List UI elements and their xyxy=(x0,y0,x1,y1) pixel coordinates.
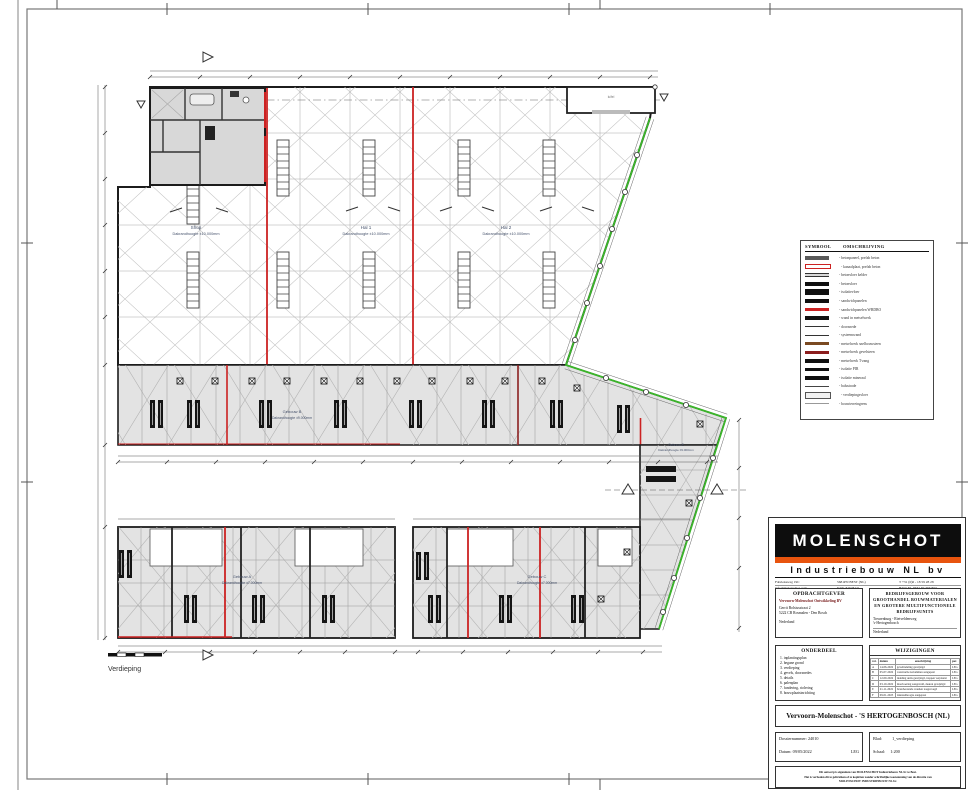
drawing-sheet: Shop Dakrandhoogte ±10.000mm Hal 1 Dakra… xyxy=(0,0,971,790)
opdrachtgever-country: Nederland xyxy=(779,620,859,625)
gebouw-b-label: Gebouw B xyxy=(283,409,302,414)
blad-value: 1_verdieping xyxy=(892,736,914,741)
gebouw-e-label: Gebouw E xyxy=(668,443,685,447)
legend-swatch xyxy=(805,386,829,387)
legend-row: - systeemwand xyxy=(805,331,929,340)
rev-desc: maatvoering aangevuld, deuren gewijzigd xyxy=(895,681,950,687)
legend-swatch xyxy=(805,351,829,354)
right-wing: Gebouw E Dakrandhoogte ±9.000mm xyxy=(640,421,717,629)
legend-label: - systeemwand xyxy=(839,333,861,337)
dossier-box: Dossiernummer: 24010 Datum: 09/05/2022 L… xyxy=(775,732,863,762)
legend-swatch xyxy=(805,392,831,399)
opdrachtgever-city: 5222 CB Rosmalen - Den Bosch xyxy=(779,611,859,616)
legend-swatch xyxy=(805,289,829,295)
legend-row: - betonvloer kelder xyxy=(805,271,929,280)
legend-row: - isolatie mineraal xyxy=(805,374,929,383)
legend-label: - sandwichpanelen xyxy=(839,299,867,303)
rev-ver: F xyxy=(871,692,879,698)
legend-row: - verdiepingsvloer xyxy=(805,391,929,400)
legend-row: - wand in metselwerk xyxy=(805,314,929,323)
legend-label: - verdiepingsvloer xyxy=(841,393,868,397)
legend-label: - isolatievloer xyxy=(839,290,859,294)
canopy xyxy=(567,85,657,114)
legend-label: - balustrade xyxy=(839,384,856,388)
legend-row: - betonpaneel, prefab beton xyxy=(805,254,929,263)
legend-swatch xyxy=(805,376,829,380)
legend-label: - metselwerk T-zang xyxy=(839,359,869,363)
hal1-height-label: Dakrandhoogte ±10.000mm xyxy=(342,232,389,236)
legend-label: - metselwerk snelbouwsteen xyxy=(839,342,881,346)
legend-swatch xyxy=(805,273,829,277)
project-country: Nederland xyxy=(873,628,957,635)
hal2-label: Hal 2 xyxy=(501,225,512,230)
floor-title: Verdieping xyxy=(108,666,141,673)
project-city: 's-Hertogenbosch xyxy=(873,621,957,626)
legend-swatch xyxy=(805,308,829,312)
legend-swatch xyxy=(805,403,829,405)
blad-box: Blad: 1_verdieping Schaal: 1:200 xyxy=(869,732,961,762)
gebouw-a-height-label: Dakrandhoogte ±7.000mm xyxy=(222,581,262,585)
middle-unit-strip: Gebouw B Dakrandhoogte ±9.000mm xyxy=(118,365,726,445)
legend-swatch xyxy=(805,282,829,286)
contact-phone: T +31 (0)6 - 18 59 28 28 xyxy=(899,580,961,584)
opdrachtgever-box: OPDRACHTGEVER Vervoorn-Molenschot Ontwik… xyxy=(775,588,863,638)
legend-row: - sandwichpanelen WBDBO xyxy=(805,305,929,314)
rev-date: 12-09-2022 xyxy=(878,675,895,681)
legend-label: - metselwerk gevelsteen xyxy=(839,350,875,354)
opdrachtgever-header: OPDRACHTGEVER xyxy=(776,589,862,597)
wijzigingen-table: ver. datum omschrijving par. A 14-06-202… xyxy=(870,658,960,698)
project-box: BEDRIJFSGEBOUW VOOR GROOTHANDEL BOUWMATE… xyxy=(869,588,961,638)
onderdeel-item: 8. bouwplaatsinrichting xyxy=(780,691,858,696)
hal2-height-label: Dakrandhoogte ±10.000mm xyxy=(482,232,529,236)
onderdeel-box: ONDERDEEL 1. inplantingsplan 2. begane g… xyxy=(775,645,863,701)
legend-description-header: OMSCHRIJVING xyxy=(843,244,885,249)
opdrachtgever-name: Vervoorn-Molenschot Ontwikkeling BV xyxy=(776,597,862,604)
legend-swatch xyxy=(805,359,829,363)
dossier-initials: LEG xyxy=(851,749,859,754)
legend-swatch xyxy=(805,299,829,303)
legend-row: - metselwerk snelbouwsteen xyxy=(805,339,929,348)
project-title-bar: Vervoorn-Molenschot - 'S HERTOGENBOSCH (… xyxy=(775,705,961,727)
legend-row: - kanaalplaat, prefab beton xyxy=(805,263,929,272)
bottom-left-block: Gebouw A Dakrandhoogte ±7.000mm xyxy=(118,527,395,638)
rev-date: 09-01-2023 xyxy=(878,692,895,698)
wijzigingen-header: WIJZIGINGEN xyxy=(870,646,960,656)
legend-label: - betonvloer kelder xyxy=(839,273,867,277)
bottom-right-block: Gebouw C Dakrandhoogte ±7.000mm xyxy=(413,527,640,638)
company-subtitle: Industriebouw NL bv xyxy=(775,563,961,578)
wijzigingen-box: WIJZIGINGEN ver. datum omschrijving par.… xyxy=(869,645,961,701)
blad-label: Blad: xyxy=(873,736,882,741)
legend-row: - isolatie PIR xyxy=(805,365,929,374)
gebouw-c-height-label: Dakrandhoogte ±7.000mm xyxy=(517,581,557,585)
contact-city: 5681PN BEST (NL) xyxy=(837,580,899,584)
shop-label: Shop xyxy=(191,225,202,230)
project-header: BEDRIJFSGEBOUW VOOR GROOTHANDEL BOUWMATE… xyxy=(870,589,960,615)
rev-date: 05-07-2022 xyxy=(878,670,895,676)
scale-bar: Verdieping xyxy=(108,653,162,673)
legend-swatch xyxy=(805,316,829,320)
legend-swatch xyxy=(805,335,829,336)
legend-label: - doorsnede xyxy=(839,325,856,329)
legend-label: - sandwichpanelen WBDBO xyxy=(839,308,881,312)
rev-date: 21-11-2022 xyxy=(878,686,895,692)
legend-label: - wand in metselwerk xyxy=(839,316,871,320)
rev-date: 03-10-2022 xyxy=(878,681,895,687)
wijzigingen-row: C 12-09-2022 indeling units gewijzigd, t… xyxy=(871,675,960,681)
gebouw-c-label: Gebouw C xyxy=(528,574,547,579)
legend-label: - kanaalplaat, prefab beton xyxy=(841,265,880,269)
legend-row: - sandwichpanelen xyxy=(805,297,929,306)
gebouw-a-label: Gebouw A xyxy=(233,574,252,579)
office-block xyxy=(150,88,265,185)
legend-label: - betonvloer xyxy=(839,282,857,286)
disclaimer-line: MOLENSCHOT INDUSTRIEBOUW NL bv. xyxy=(776,779,960,784)
legend-label: - isolatie PIR xyxy=(839,367,858,371)
title-block: MOLENSCHOT Industriebouw NL bv Fabrieksw… xyxy=(768,517,966,789)
rev-par: LEG xyxy=(951,692,960,698)
dossier-number: Dossiernummer: 24010 xyxy=(779,736,859,741)
legend-row: - bouwterreingrens xyxy=(805,399,929,408)
legend-row: - betonvloer xyxy=(805,280,929,289)
legend-label: - isolatie mineraal xyxy=(839,376,866,380)
gebouw-b-height-label: Dakrandhoogte ±9.000mm xyxy=(272,416,312,420)
rev-desc: indeling units gewijzigd, trappen verpla… xyxy=(895,675,950,681)
legend-row: - metselwerk gevelsteen xyxy=(805,348,929,357)
company-logo: MOLENSCHOT xyxy=(775,524,961,557)
schaal-value: 1:200 xyxy=(890,749,900,754)
canopy-label: luifel xyxy=(608,95,615,99)
legend-swatch xyxy=(805,368,829,372)
legend-symbol-header: SYMBOOL xyxy=(805,244,843,249)
legend-swatch xyxy=(805,256,829,260)
schaal-label: Schaal: xyxy=(873,749,885,754)
shop-height-label: Dakrandhoogte ±10.000mm xyxy=(172,232,219,236)
legend-swatch xyxy=(805,342,829,346)
legend-row: - balustrade xyxy=(805,382,929,391)
rev-desc: dakrandhoogte aangepast xyxy=(895,692,950,698)
hal1-label: Hal 1 xyxy=(361,225,372,230)
onderdeel-header: ONDERDEEL xyxy=(776,646,862,654)
legend-box: SYMBOOL OMSCHRIJVING - betonpaneel, pref… xyxy=(800,240,934,420)
dossier-date: Datum: 09/05/2022 xyxy=(779,749,812,754)
legend-label: - betonpaneel, prefab beton xyxy=(839,256,879,260)
legend-row: - isolatievloer xyxy=(805,288,929,297)
rev-date: 14-06-2022 xyxy=(878,664,895,670)
copyright-disclaimer: Dit ontwerp is eigendom van MOLENSCHOT I… xyxy=(775,766,961,788)
legend-row: - metselwerk T-zang xyxy=(805,357,929,366)
legend-label: - bouwterreingrens xyxy=(839,402,867,406)
gebouw-e-height-label: Dakrandhoogte ±9.000mm xyxy=(658,448,694,452)
contact-address: Fabrieksweg 19C xyxy=(775,580,837,584)
wijzigingen-row: F 09-01-2023 dakrandhoogte aangepast LEG xyxy=(871,692,960,698)
legend-swatch xyxy=(805,326,829,328)
legend-row: - doorsnede xyxy=(805,322,929,331)
legend-swatch xyxy=(805,264,831,269)
